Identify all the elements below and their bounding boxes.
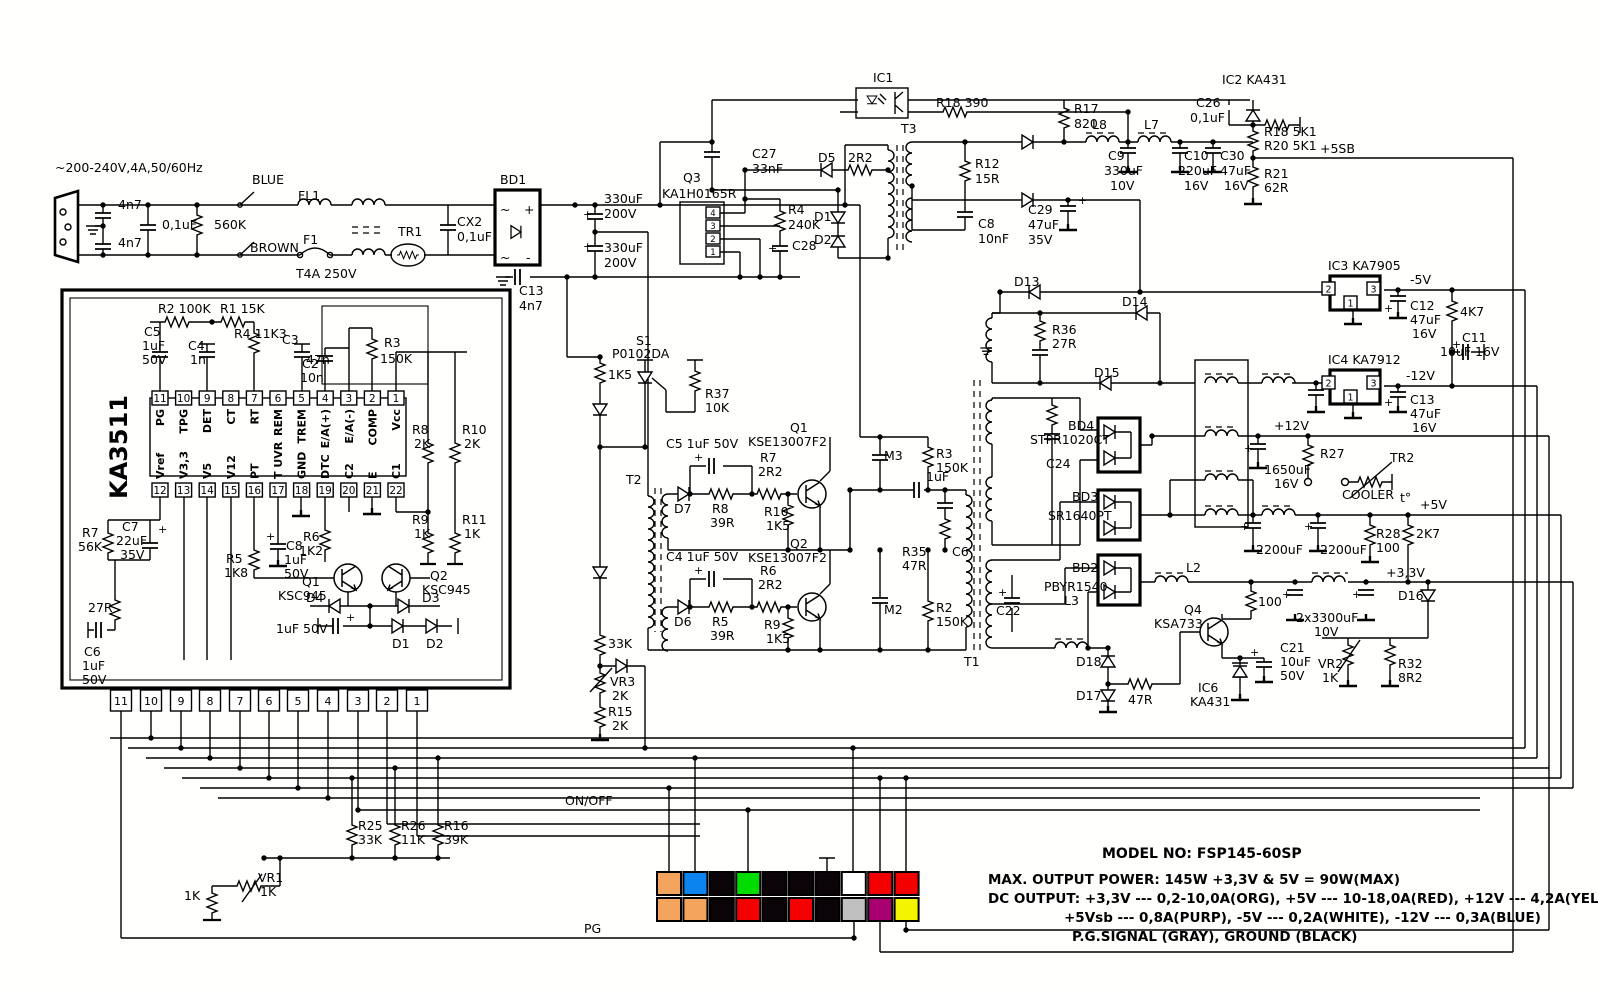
label-47uf: 47uF <box>1028 217 1059 232</box>
label-1k: 1K <box>464 526 481 541</box>
junction-dot <box>145 202 150 207</box>
label-c29: C29 <box>1028 202 1053 217</box>
label-c2: C2 <box>302 356 319 371</box>
junction-dot <box>277 855 282 860</box>
label-c28: C28 <box>792 238 817 253</box>
label-27r: 27R <box>88 600 113 615</box>
junction-dot <box>749 491 754 496</box>
label-mark: ~ <box>500 250 510 265</box>
label-c8: C8 <box>978 216 995 231</box>
label-l3: L3 <box>1064 593 1079 608</box>
label-f1: F1 <box>303 232 318 247</box>
junction-dot <box>903 927 908 932</box>
label-15: 15 <box>224 485 237 497</box>
label-5sb: +5SB <box>1320 141 1355 156</box>
ic1-optocoupler <box>856 88 908 118</box>
label-d2: D2 <box>814 232 832 247</box>
junction-dot <box>749 604 754 609</box>
label-47uf: 47uF <box>1410 312 1441 327</box>
label-5v: -5V <box>1410 272 1431 287</box>
label-2: 2 <box>1325 285 1331 296</box>
label-d15: D15 <box>1094 365 1120 380</box>
label-3: 3 <box>1370 379 1376 390</box>
label-1650uf: 1650uF <box>1264 462 1311 477</box>
label-1: 1 <box>1347 393 1353 404</box>
schematic-page: ~200-240V,4A,50/60Hz4n74n70,1uF560KBLUEF… <box>0 0 1598 992</box>
label-mark: + <box>346 611 355 624</box>
label-56k: 56K <box>78 539 103 554</box>
label-10k: 10K <box>705 400 730 415</box>
junction-dot <box>1250 512 1255 517</box>
label-16: 16 <box>248 485 262 497</box>
label-47uf: 47uF <box>1410 406 1441 421</box>
label-det: DET <box>201 409 214 434</box>
label-1: 1 <box>710 248 715 258</box>
label-t: t° <box>1400 490 1411 505</box>
atx-pin-top-10-red <box>895 872 919 895</box>
label-d13: D13 <box>1014 274 1040 289</box>
atx-pin-top-2-blue <box>683 872 707 895</box>
label-r35: R35 <box>902 544 927 559</box>
label-mark: + <box>583 208 592 221</box>
label-ksa733: KSA733 <box>1154 616 1203 631</box>
atx-pin-bottom-6-red <box>789 898 813 921</box>
junction-dot <box>785 491 790 496</box>
label-33k: 33K <box>358 832 383 847</box>
label-4n7: 4n7 <box>118 235 142 250</box>
junction-dot <box>877 547 882 552</box>
label-e-a: E/A(+) <box>319 409 332 448</box>
label-3: 3 <box>710 222 715 232</box>
label-l8: L8 <box>1092 117 1107 132</box>
label-tr1: TR1 <box>397 224 422 239</box>
label-mark: + <box>768 242 777 255</box>
junction-dot <box>1037 380 1042 385</box>
label-39r: 39R <box>710 515 735 530</box>
label-mark: + <box>1384 302 1393 315</box>
atx-pin-top-8-white <box>842 872 866 895</box>
label-q2: Q2 <box>790 536 808 551</box>
label-vr2: VR2 <box>1318 656 1343 671</box>
junction-dot <box>1255 433 1260 438</box>
junction-dot <box>207 755 212 760</box>
label-c27: C27 <box>752 146 777 161</box>
label-5vsb-0-8a-purp-5v-0-2a-white-12v-0-3a-blue: +5Vsb --- 0,8A(PURP), -5V --- 0,2A(WHITE… <box>1064 910 1541 926</box>
junction-dot <box>148 735 153 740</box>
label-1uf: 1uF <box>82 658 105 673</box>
label-e-a: E/A(-) <box>343 409 356 444</box>
label-12: 12 <box>153 485 166 497</box>
ac-plug <box>55 191 78 262</box>
label-1uf: 1uF <box>926 469 949 484</box>
junction-dot <box>237 765 242 770</box>
junction-dot <box>295 785 300 790</box>
label-mark: + <box>266 530 275 543</box>
label-kse13007f2: KSE13007F2 <box>748 434 827 449</box>
label-10uf-16v: 10uF 16V <box>1440 344 1500 359</box>
junction-dot <box>745 807 750 812</box>
label-r20-5k1: R20 5K1 <box>1264 138 1317 153</box>
label-c9: C9 <box>1108 148 1125 163</box>
label-mark: + <box>1078 194 1087 207</box>
label-16v: 16V <box>1412 326 1437 341</box>
label-c1: C1 <box>390 463 403 479</box>
label-dc-output-3-3v-0-2-10-0a-org-5v-10-18-0a-red-12v-4-2a-yel: DC OUTPUT: +3,3V --- 0,2-10,0A(ORG), +5V… <box>988 891 1598 907</box>
label-stpr1020ct: STPR1020CT <box>1030 432 1110 447</box>
label-r25: R25 <box>358 818 383 833</box>
label-r10: R10 <box>764 504 789 519</box>
label-v12: V12 <box>225 455 238 479</box>
label-pg: PG <box>584 921 601 936</box>
junction-dot <box>942 487 947 492</box>
label-max-output-power-145w-3-3v-5v-90w-max: MAX. OUTPUT POWER: 145W +3,3V & 5V = 90W… <box>988 872 1400 888</box>
label-33nf: 33nF <box>752 161 783 176</box>
junction-dot <box>100 223 105 228</box>
atx-pin-bottom-9-purple <box>868 898 892 921</box>
label-50v: 50V <box>142 352 167 367</box>
label-q4: Q4 <box>1184 602 1202 617</box>
atx-pin-bottom-3-black <box>710 898 734 921</box>
label-pbyr1540: PBYR1540 <box>1044 579 1108 594</box>
atx-pin-bottom-5-black <box>763 898 787 921</box>
label-50v: 50V <box>82 672 107 687</box>
junction-dot <box>592 229 597 234</box>
junction-dot <box>592 274 597 279</box>
junction-dot <box>925 547 930 552</box>
junction-dot <box>709 187 714 192</box>
label-c4-1uf-50v: C4 1uF 50V <box>666 549 739 564</box>
label-200v: 200V <box>604 255 637 270</box>
label-4k7: 4K7 <box>1460 304 1484 319</box>
label-7: 7 <box>251 393 258 405</box>
label-100: 100 <box>1258 594 1282 609</box>
label-mark: + <box>1304 520 1313 533</box>
label-tpg: TPG <box>178 409 191 434</box>
label-e: E <box>366 471 379 479</box>
junction-dot <box>1395 287 1400 292</box>
junction-dot <box>1149 433 1154 438</box>
junction-dot <box>1177 139 1182 144</box>
label-r36: R36 <box>1052 322 1077 337</box>
atx-pin-bottom-8-gray <box>842 898 866 921</box>
label-r10: R10 <box>462 422 487 437</box>
label-2: 2 <box>384 695 391 708</box>
label-r4-11k3: R4 11K3 <box>234 326 287 341</box>
atx-pin-top-5-black <box>763 872 787 895</box>
label-20: 20 <box>342 485 355 497</box>
atx-pin-bottom-4-red <box>736 898 760 921</box>
label-2: 2 <box>369 393 376 405</box>
junction-dot <box>1037 310 1042 315</box>
label-150k: 150K <box>380 351 413 366</box>
label-c4: C4 <box>188 338 205 353</box>
label-q2: Q2 <box>430 568 448 583</box>
junction-dot <box>885 167 890 172</box>
label-cx2: CX2 <box>457 214 482 229</box>
label-mark: + <box>1282 588 1291 601</box>
label-16v: 16V <box>1412 420 1437 435</box>
label-6: 6 <box>266 695 273 708</box>
label-ic1: IC1 <box>873 70 893 85</box>
label-10: 10 <box>144 695 158 708</box>
label-mark: + <box>1452 338 1461 351</box>
label-vcc: Vcc <box>390 409 403 431</box>
label-5v: +5V <box>1420 497 1447 512</box>
label-4n7: 4n7 <box>118 197 142 212</box>
atx-pin-bottom-1-orange <box>657 898 681 921</box>
label-pg: PG <box>154 409 167 426</box>
junction-dot <box>642 745 647 750</box>
atx-pin-bottom-7-black <box>815 898 839 921</box>
label-c24: C24 <box>1046 456 1071 471</box>
junction-dot <box>1313 380 1318 385</box>
label-19: 19 <box>319 485 332 497</box>
junction-dot <box>1395 383 1400 388</box>
label-2k: 2K <box>414 436 431 451</box>
label-r7: R7 <box>82 525 99 540</box>
label-ic2-ka431: IC2 KA431 <box>1222 72 1287 87</box>
label-r17: R17 <box>1074 101 1099 116</box>
label-d6: D6 <box>674 614 692 629</box>
label-39r: 39R <box>710 628 735 643</box>
junction-dot <box>1405 512 1410 517</box>
junction-dot <box>435 855 440 860</box>
label-10: 10 <box>177 393 190 405</box>
label-mark: ~ <box>500 202 510 217</box>
junction-dot <box>597 444 602 449</box>
atx-pin-top-7-black <box>815 872 839 895</box>
label-c10: C10 <box>1184 148 1209 163</box>
label-r9: R9 <box>764 617 781 632</box>
label-3-3v: +3,3V <box>1386 565 1425 580</box>
label-c5: C5 <box>144 324 161 339</box>
junction-dot <box>851 935 856 940</box>
junction-dot <box>1061 139 1066 144</box>
schematic-canvas: ~200-240V,4A,50/60Hz4n74n70,1uF560KBLUEF… <box>0 0 1598 992</box>
junction-dot <box>597 354 602 359</box>
junction-dot <box>742 167 747 172</box>
junction-dot <box>903 775 908 780</box>
junction-dot <box>349 775 354 780</box>
label-18: 18 <box>295 485 308 497</box>
label-c30: C30 <box>1220 148 1245 163</box>
label-r4: R4 <box>788 202 805 217</box>
junction-dot <box>355 807 360 812</box>
label-bd4: BD4 <box>1068 418 1094 433</box>
label-mark: + <box>1240 520 1249 533</box>
label-c12: C12 <box>1410 298 1435 313</box>
label-mark: + <box>694 451 703 464</box>
label-1k5: 1K5 <box>608 367 632 382</box>
label-10n: 10n <box>300 370 324 385</box>
label-r6: R6 <box>303 529 320 544</box>
label-1k: 1K <box>414 526 431 541</box>
label-tr2: TR2 <box>1389 450 1414 465</box>
junction-dot <box>435 755 440 760</box>
junction-dot <box>592 202 597 207</box>
label-2200uf: 2200uF <box>1256 542 1303 557</box>
junction-dot <box>997 289 1002 294</box>
label-d18: D18 <box>1076 654 1102 669</box>
junction-dot <box>209 319 214 324</box>
label-trem: TREM <box>296 409 309 443</box>
label-c13: C13 <box>1410 392 1435 407</box>
label-35v: 35V <box>1028 232 1053 247</box>
label-mark: + <box>524 202 534 217</box>
label-33k: 33K <box>608 636 633 651</box>
junction-dot <box>1305 433 1310 438</box>
label-ka1h0165r: KA1H0165R <box>662 186 737 201</box>
junction-dot <box>835 187 840 192</box>
label-200-240v-4a-50-60hz: ~200-240V,4A,50/60Hz <box>55 160 203 175</box>
label-p0102da: P0102DA <box>612 346 670 361</box>
label-1k: 1K <box>1322 670 1339 685</box>
label-1uf-50v: 1uF 50V <box>276 621 328 636</box>
label-11: 11 <box>153 393 166 405</box>
label-d1: D1 <box>814 209 832 224</box>
label-2: 2 <box>710 235 715 245</box>
label-2: 2 <box>1325 379 1331 390</box>
label-vref: Vref <box>154 453 167 479</box>
junction-dot <box>1248 579 1253 584</box>
junction-dot <box>367 603 372 608</box>
junction-dot <box>785 604 790 609</box>
label-8: 8 <box>227 393 234 405</box>
junction-dot <box>909 183 914 188</box>
junction-dot <box>1449 349 1454 354</box>
label-2200uf: 2200uF <box>1320 542 1367 557</box>
junction-dot <box>877 487 882 492</box>
label-7: 7 <box>237 695 244 708</box>
junction-dot <box>850 745 855 750</box>
label-t3: T3 <box>900 121 917 136</box>
label-rem: REM <box>272 409 285 436</box>
label-1n: 1n <box>190 352 206 367</box>
label-4n7: 4n7 <box>519 298 543 313</box>
label-t2: T2 <box>625 472 642 487</box>
label-16v: 16V <box>1274 476 1299 491</box>
label-1k5: 1K5 <box>766 631 790 646</box>
label-mark: - <box>526 250 531 265</box>
label-50v: 50V <box>1280 668 1305 683</box>
junction-dot <box>942 547 947 552</box>
label-cooler: COOLER <box>1342 487 1394 502</box>
junction-dot <box>757 274 762 279</box>
label-4: 4 <box>710 209 715 219</box>
label-1k5: 1K5 <box>766 518 790 533</box>
label-mark: + <box>158 523 167 536</box>
label-1k: 1K <box>260 884 277 899</box>
label-15r: 15R <box>975 171 1000 186</box>
junction-dot <box>1367 512 1372 517</box>
atx-pin-bottom-10-yellow <box>895 898 919 921</box>
junction-dot <box>349 855 354 860</box>
label-d7: D7 <box>674 501 692 516</box>
label-r21: R21 <box>1264 166 1289 181</box>
label-r8: R8 <box>412 422 429 437</box>
label-r2: R2 <box>936 600 953 615</box>
junction-dot <box>962 139 967 144</box>
label-0-1uf: 0,1uF <box>457 229 492 244</box>
label-r1-15k: R1 15K <box>220 301 266 316</box>
label-c21: C21 <box>1280 640 1305 655</box>
junction-dot <box>1250 122 1255 127</box>
label-3: 3 <box>355 695 362 708</box>
label-100: 100 <box>1376 540 1400 555</box>
label-r15: R15 <box>608 704 633 719</box>
label-2r2: 2R2 <box>758 464 783 479</box>
label-d1: D1 <box>392 636 410 651</box>
junction-dot <box>666 785 671 790</box>
label-c11: C11 <box>1462 330 1487 345</box>
label-1k: 1K <box>184 888 201 903</box>
atx-pin-top-9-red <box>868 872 892 895</box>
label-16v: 16V <box>1184 178 1209 193</box>
label-13: 13 <box>177 485 190 497</box>
label-ic4-ka7912: IC4 KA7912 <box>1328 352 1401 367</box>
junction-dot <box>657 202 662 207</box>
label-c6: C6 <box>84 644 101 659</box>
junction-dot <box>194 202 199 207</box>
junction-dot <box>1105 645 1110 650</box>
label-d16: D16 <box>1398 588 1424 603</box>
label-rt: RT <box>248 409 261 425</box>
label-r8: R8 <box>712 501 729 516</box>
label-r3: R3 <box>384 335 401 350</box>
junction-dot <box>564 274 569 279</box>
junction-dot <box>1449 287 1454 292</box>
label-12v: +12V <box>1274 418 1309 433</box>
label-t1: T1 <box>963 654 980 669</box>
junction-dot <box>785 547 790 552</box>
junction-dot <box>1250 155 1255 160</box>
junction-dot <box>737 274 742 279</box>
label-4: 4 <box>322 393 329 405</box>
label-r2-100k: R2 100K <box>158 301 211 316</box>
label-r18-5k1: R18 5K1 <box>1264 124 1317 139</box>
label-q1: Q1 <box>302 574 320 589</box>
label-47uf: 47uF <box>1220 163 1251 178</box>
junction-dot <box>847 547 852 552</box>
label-330uf: 330uF <box>604 240 643 255</box>
junction-dot <box>1105 681 1110 686</box>
label-c6: C6 <box>952 544 969 559</box>
label-r7: R7 <box>760 450 777 465</box>
label-ic6: IC6 <box>1198 680 1218 695</box>
junction-dot <box>194 252 199 257</box>
label-ic3-ka7905: IC3 KA7905 <box>1328 258 1401 273</box>
generated-layer: ~200-240V,4A,50/60Hz4n74n70,1uF560KBLUEF… <box>55 70 1598 945</box>
label-d4: D4 <box>306 590 324 605</box>
label-10uf: 10uF <box>1280 654 1311 669</box>
label-150k: 150K <box>936 614 969 629</box>
label-22: 22 <box>389 485 402 497</box>
label-d14: D14 <box>1122 294 1148 309</box>
label-11: 11 <box>114 695 128 708</box>
label-m3: M3 <box>884 448 903 463</box>
label-t4a-250v: T4A 250V <box>295 266 357 281</box>
label-d3: D3 <box>422 590 440 605</box>
label-q3: Q3 <box>683 170 701 185</box>
label-vr3: VR3 <box>610 674 635 689</box>
label-comp: COMP <box>366 409 379 445</box>
label-r16: R16 <box>444 818 469 833</box>
label-r27: R27 <box>1320 446 1345 461</box>
label-fl1: FL1 <box>298 188 320 203</box>
label-47r: 47R <box>902 558 927 573</box>
label-560k: 560K <box>214 217 247 232</box>
junction-dot <box>925 647 930 652</box>
